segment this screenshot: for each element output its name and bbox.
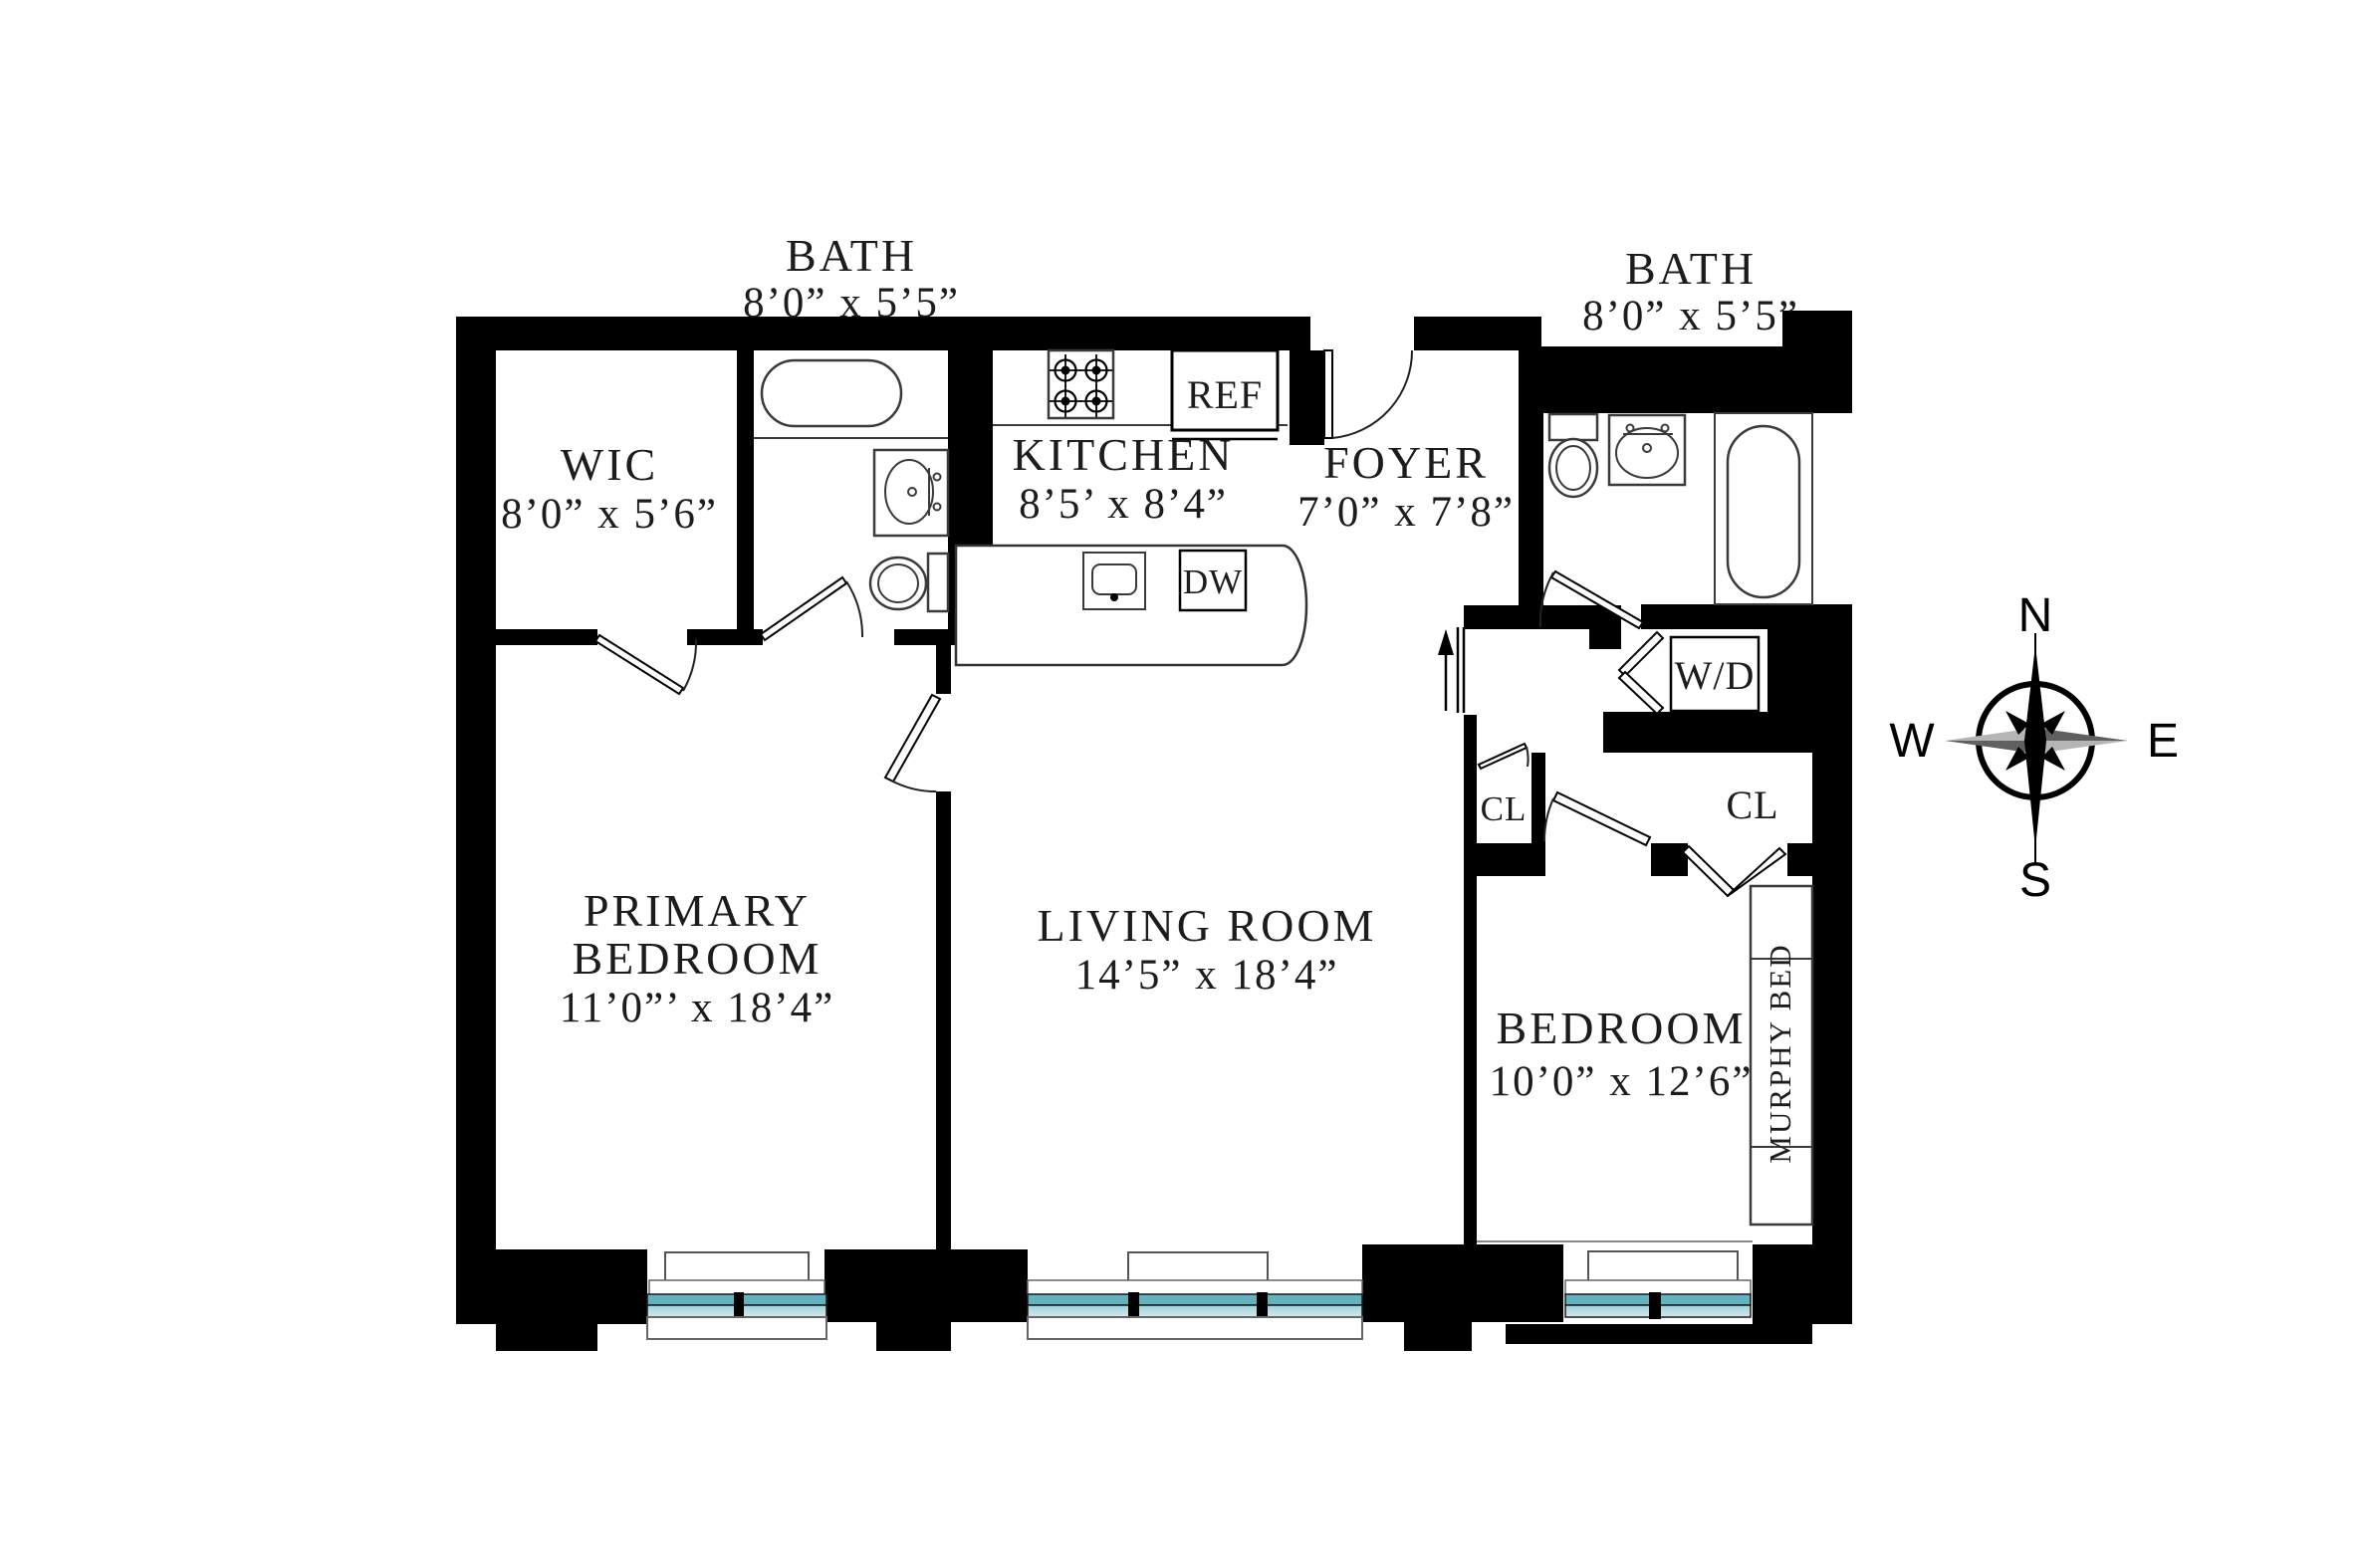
room-label-living-room: LIVING ROOM: [1038, 900, 1377, 951]
bathtub-icon: [754, 360, 948, 438]
room-label-bath-left: BATH: [786, 230, 917, 281]
room-label-wic: WIC: [561, 439, 658, 490]
murphy-bed: MURPHY BED: [1751, 886, 1812, 1225]
refrigerator: REF: [1172, 350, 1278, 439]
dishwasher: DW: [1180, 551, 1246, 610]
bathtub-icon-right: [1715, 413, 1812, 604]
room-dims-foyer: 7’0” x 7’8”: [1297, 489, 1515, 536]
sink-icon-right: [1609, 415, 1685, 485]
hall-opening-and-entry-arrow: [1438, 627, 1464, 713]
room-label-bedroom: BEDROOM: [1496, 1003, 1746, 1053]
room-dims-bath-left: 8’0” x 5’5”: [743, 280, 960, 327]
room-label-kitchen: KITCHEN: [1013, 429, 1235, 480]
room-dims-primary: 11’0”’ x 18’4”: [560, 985, 834, 1031]
room-label-primary-1: PRIMARY: [584, 885, 811, 936]
door-hall-to-bedroom: [1544, 792, 1650, 845]
direction-arrow-icon: [1438, 629, 1454, 711]
closet-bedroom-label: CL: [1726, 783, 1778, 827]
compass-west-label: W: [1889, 715, 1935, 768]
murphy-bed-label: MURPHY BED: [1763, 943, 1797, 1163]
room-dims-kitchen: 8’5’ x 8’4”: [1019, 481, 1228, 528]
compass-rose: N S E W: [1889, 589, 2179, 907]
closet-hall-label: CL: [1481, 789, 1528, 828]
room-label-bath-right: BATH: [1625, 243, 1757, 294]
room-dims-bath-right: 8’0” x 5’5”: [1582, 293, 1799, 339]
kitchen-island: DW: [956, 546, 1306, 665]
floor-plan-page: REF DW W/D CL CL: [0, 0, 2353, 1568]
door-wic: [595, 635, 696, 694]
room-dims-wic: 8’0” x 5’6”: [501, 491, 718, 538]
toilet-icon-right: [1549, 414, 1597, 497]
compass-south-label: S: [2019, 854, 2051, 907]
window-living-room: [1028, 1252, 1362, 1339]
toilet-icon: [870, 554, 948, 611]
window-primary-bedroom: [647, 1252, 826, 1339]
room-label-primary-2: BEDROOM: [572, 933, 822, 984]
compass-north-label: N: [2018, 589, 2053, 642]
wd-label: W/D: [1675, 653, 1756, 698]
ref-label: REF: [1187, 372, 1263, 417]
room-label-foyer: FOYER: [1323, 437, 1489, 488]
room-dims-living-room: 14’5” x 18’4”: [1075, 952, 1339, 999]
door-bath-left: [761, 577, 862, 640]
washer-dryer: W/D: [1619, 632, 1759, 714]
compass-east-label: E: [2147, 715, 2179, 768]
door-primary-bedroom: [885, 695, 940, 791]
door-entry: [1324, 350, 1412, 438]
dw-label: DW: [1183, 562, 1243, 601]
door-closet-hall: [1479, 744, 1529, 769]
room-dims-bedroom: 10’0” x 12’6”: [1490, 1058, 1754, 1105]
floor-plan-canvas: REF DW W/D CL CL: [0, 0, 2353, 1568]
stove-icon: [1049, 350, 1113, 418]
sink-icon: [874, 450, 948, 536]
